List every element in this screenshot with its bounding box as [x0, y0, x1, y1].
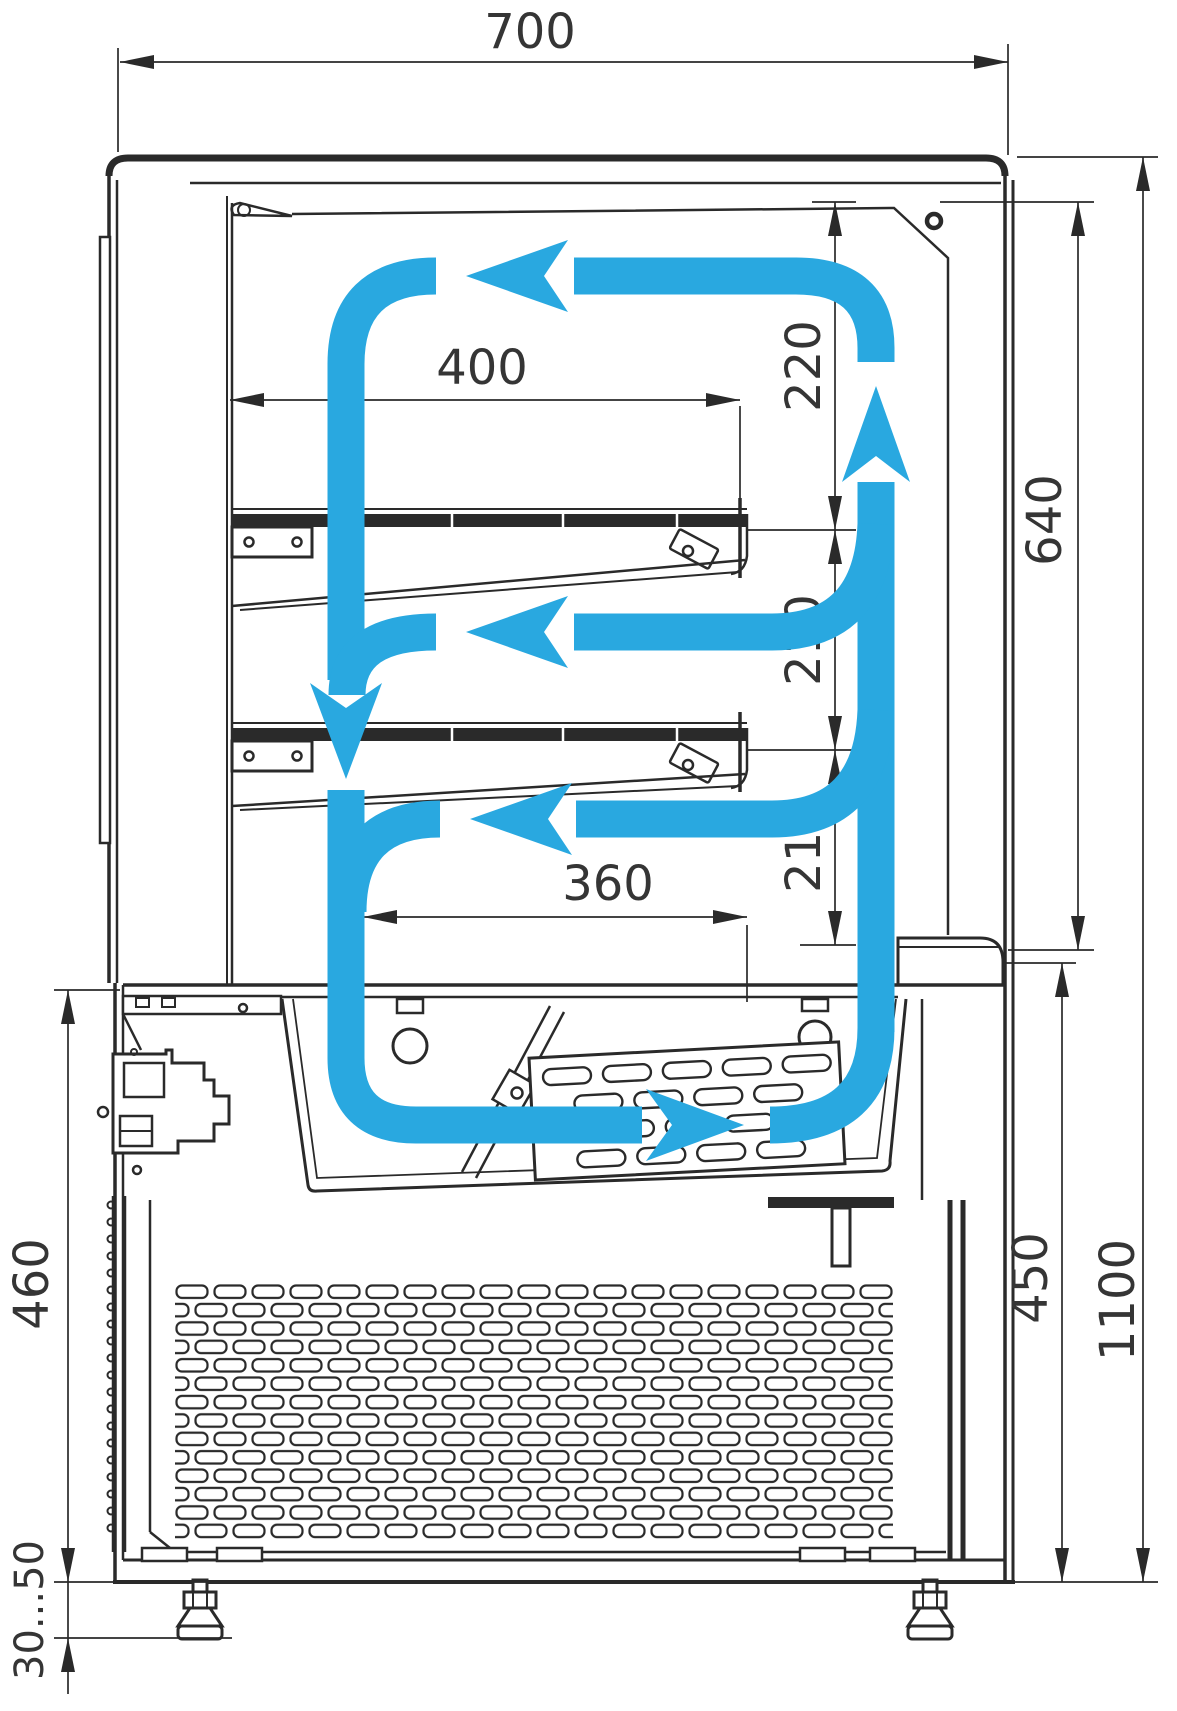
airflow-left-arrow-icon	[466, 240, 568, 312]
dim-label-1100: 1100	[1090, 1239, 1146, 1361]
dim-label-30-50: 30...50	[7, 1540, 53, 1680]
dim-label-220: 220	[776, 320, 832, 412]
dim-label-640: 640	[1017, 474, 1073, 566]
tray-support	[768, 1197, 894, 1208]
dim-label-460: 460	[4, 1238, 60, 1330]
compressor-bracket	[113, 1050, 229, 1153]
adjustable-foot-left	[178, 1580, 222, 1639]
adjustable-foot-right	[908, 1580, 952, 1639]
condenser-grille	[175, 1284, 893, 1541]
dim-label-360: 360	[562, 856, 654, 912]
base-interior	[98, 996, 963, 1561]
front-sill	[898, 938, 1003, 985]
shelf-lower	[232, 712, 747, 810]
dimension-shelf-depth: 400	[230, 340, 740, 508]
dimension-deck-opening: 360	[363, 856, 747, 1002]
airflow-mid-branch-1	[574, 524, 876, 632]
shelf-upper	[232, 498, 747, 610]
dim-label-400: 400	[436, 340, 528, 396]
dimension-chamber-height: 640	[940, 202, 1094, 950]
screw-icon	[927, 214, 941, 228]
dimension-base-height-rear: 460	[4, 990, 120, 1582]
drain-pipe	[832, 1208, 850, 1266]
shelf-brace	[232, 560, 745, 606]
airflow-left-arrow-icon	[470, 783, 572, 855]
display-case-section-drawing: 700 400 360	[0, 0, 1177, 1711]
airflow-up-arrow-icon	[842, 386, 910, 482]
dimension-overall-width: 700	[118, 4, 1008, 155]
airflow-left-arrow-icon	[466, 596, 568, 668]
rear-panel	[100, 237, 110, 843]
dim-label-700: 700	[484, 4, 576, 60]
technical-drawing-page: 700 400 360	[0, 0, 1177, 1711]
dim-label-450: 450	[1003, 1232, 1059, 1324]
